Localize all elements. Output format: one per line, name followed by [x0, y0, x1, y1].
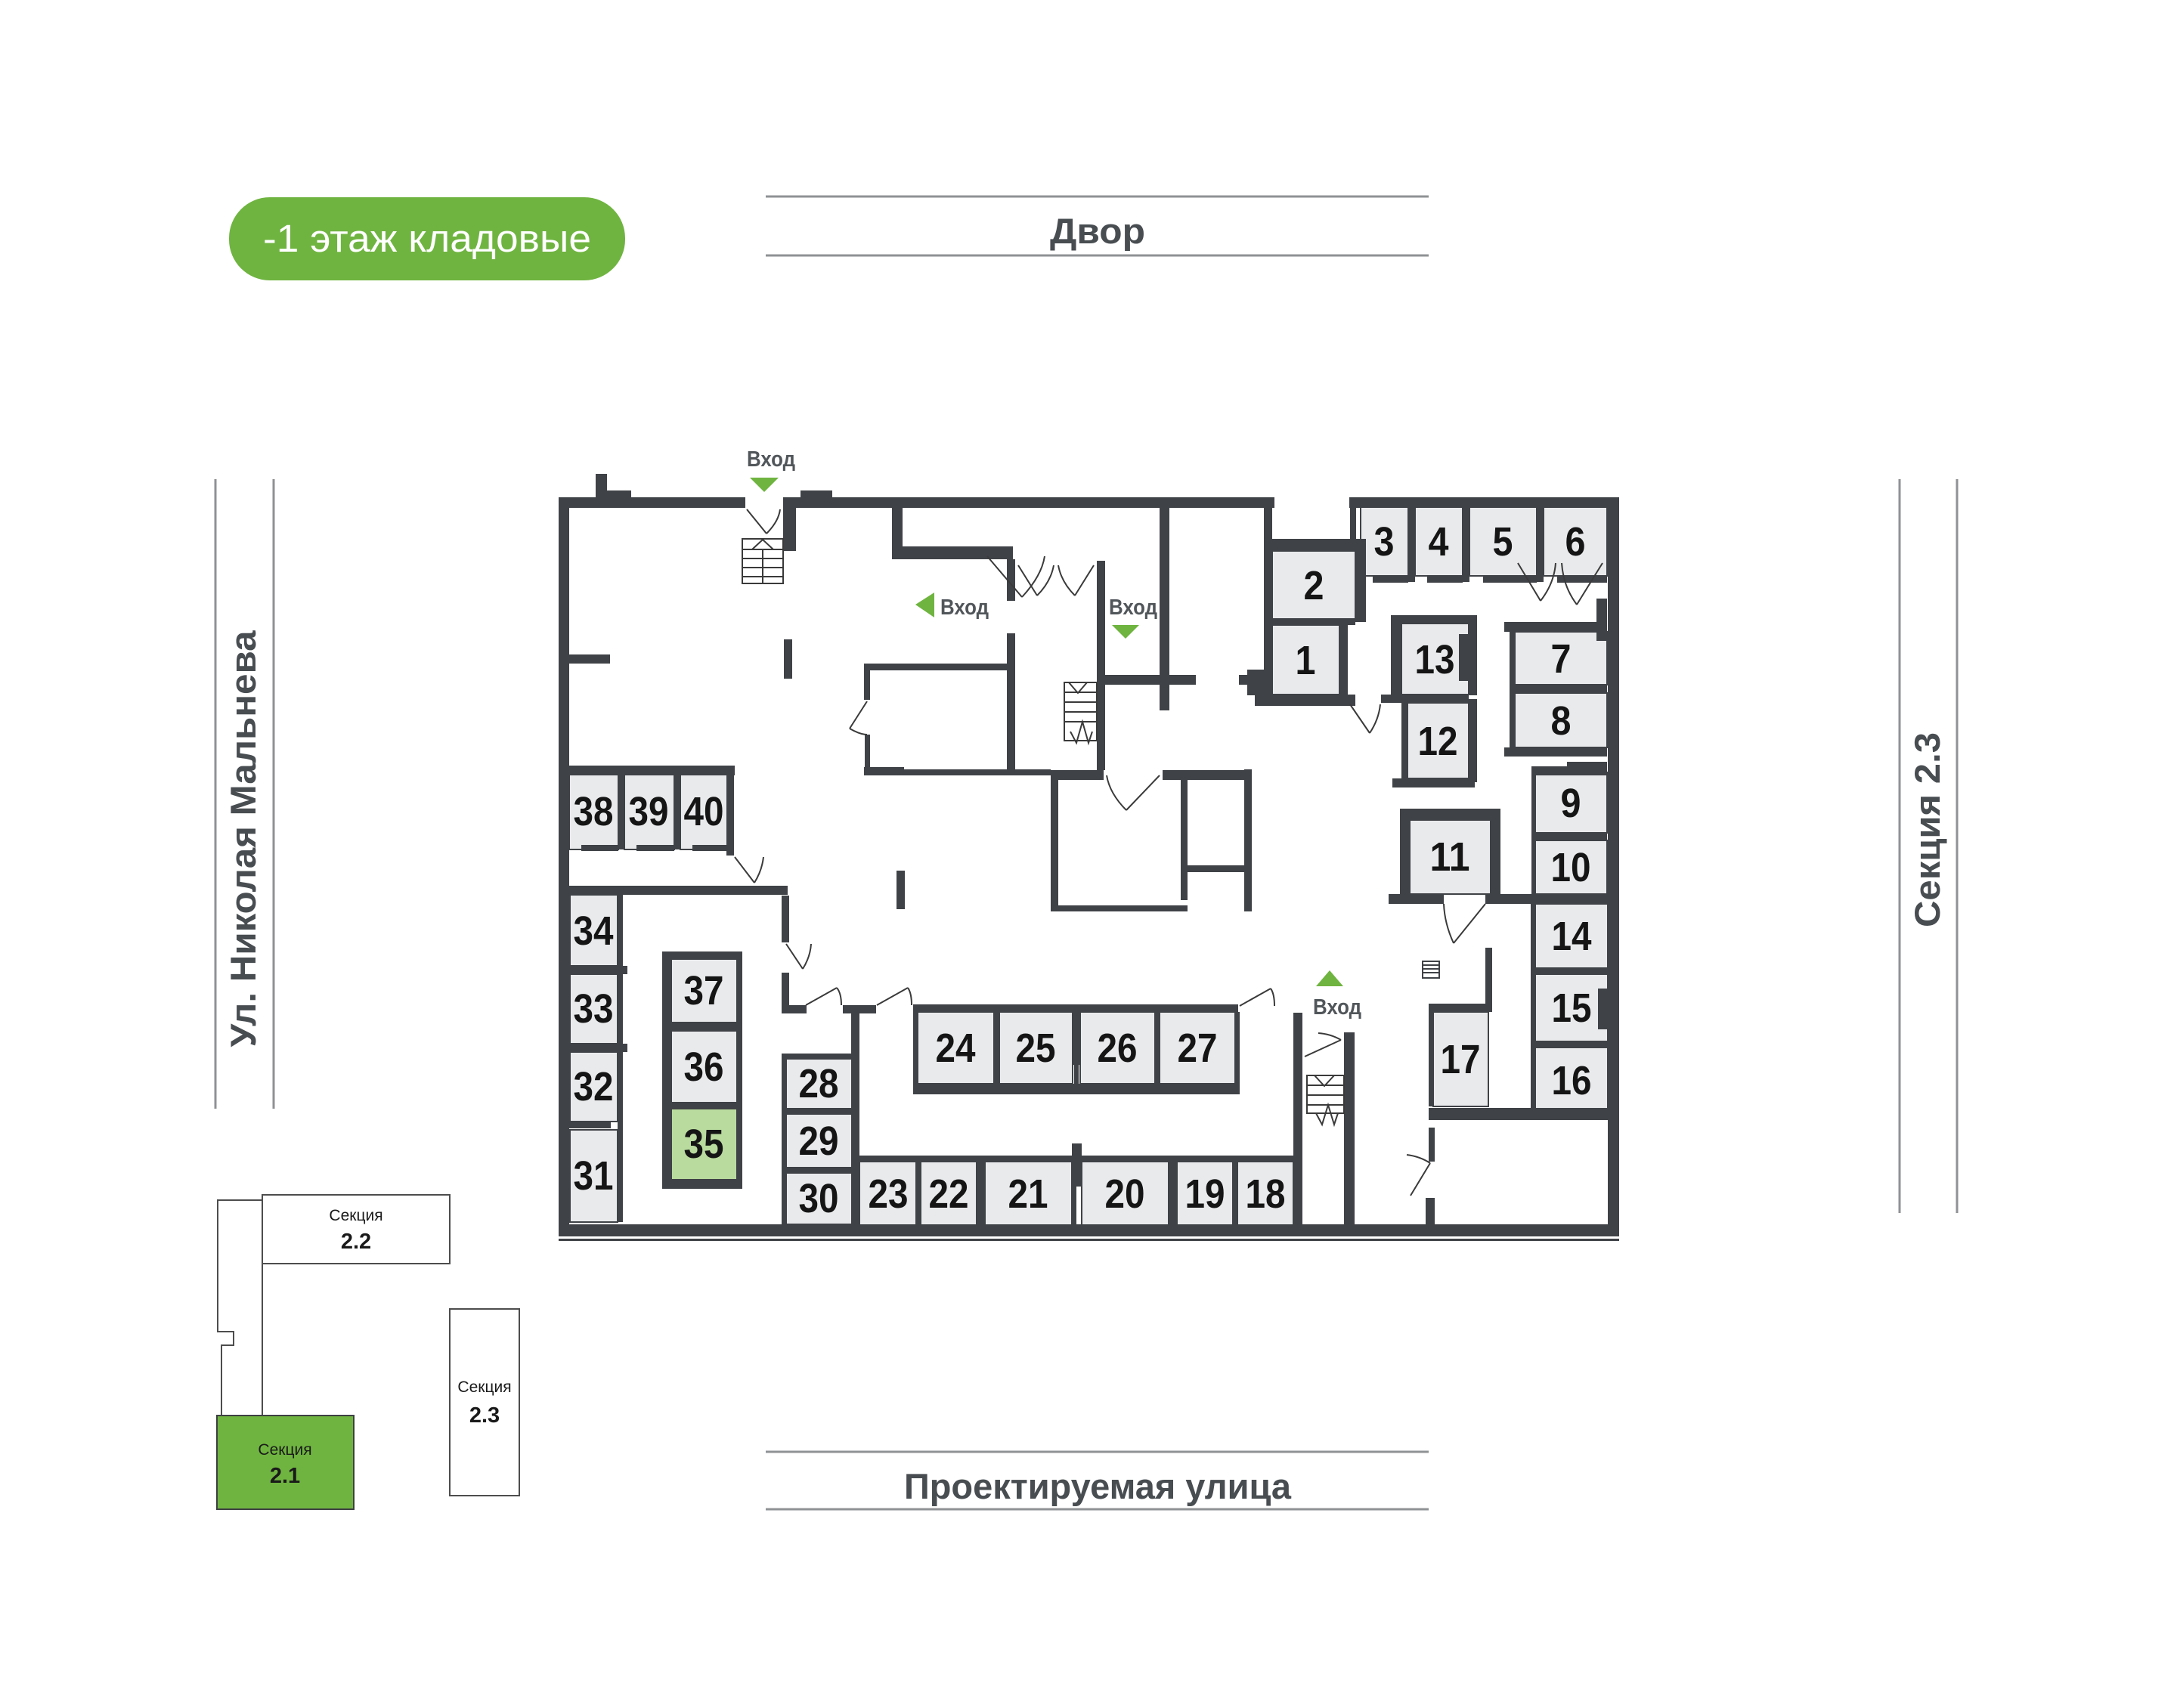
svg-text:4: 4	[1429, 519, 1449, 565]
svg-text:Вход: Вход	[940, 596, 989, 620]
svg-text:10: 10	[1551, 845, 1591, 890]
svg-text:8: 8	[1551, 698, 1572, 744]
svg-text:7: 7	[1551, 636, 1572, 682]
svg-text:30: 30	[799, 1176, 839, 1221]
svg-text:24: 24	[936, 1026, 976, 1071]
svg-text:Секция: Секция	[258, 1441, 311, 1459]
svg-text:Вход: Вход	[747, 447, 795, 472]
svg-text:12: 12	[1418, 719, 1458, 764]
svg-text:13: 13	[1415, 637, 1455, 682]
svg-text:39: 39	[629, 789, 669, 834]
svg-text:2.2: 2.2	[341, 1230, 371, 1254]
svg-text:33: 33	[574, 986, 614, 1032]
svg-text:25: 25	[1016, 1026, 1056, 1071]
svg-text:32: 32	[574, 1064, 614, 1109]
svg-text:23: 23	[869, 1171, 909, 1217]
svg-text:2: 2	[1304, 563, 1324, 608]
svg-text:Секция: Секция	[457, 1378, 511, 1396]
svg-text:Ул. Николая Мальнева: Ул. Николая Мальнева	[223, 630, 263, 1047]
svg-text:21: 21	[1008, 1171, 1048, 1217]
svg-text:Проектируемая улица: Проектируемая улица	[904, 1466, 1292, 1506]
svg-text:18: 18	[1246, 1171, 1286, 1217]
svg-text:17: 17	[1441, 1037, 1481, 1082]
svg-text:31: 31	[574, 1153, 614, 1199]
svg-text:2.3: 2.3	[469, 1403, 500, 1428]
svg-text:Двор: Двор	[1050, 211, 1145, 251]
svg-text:37: 37	[684, 968, 724, 1013]
svg-text:19: 19	[1185, 1171, 1225, 1217]
svg-text:36: 36	[684, 1044, 724, 1090]
svg-text:27: 27	[1178, 1026, 1218, 1071]
svg-text:Вход: Вход	[1109, 596, 1157, 620]
svg-text:6: 6	[1565, 519, 1586, 565]
svg-text:40: 40	[684, 789, 724, 834]
svg-text:1: 1	[1296, 638, 1316, 683]
svg-text:Вход: Вход	[1313, 995, 1361, 1020]
svg-text:-1 этаж кладовые: -1 этаж кладовые	[263, 217, 591, 260]
svg-text:16: 16	[1552, 1058, 1592, 1103]
svg-text:38: 38	[574, 789, 614, 834]
svg-text:34: 34	[574, 908, 614, 954]
svg-text:Секция: Секция	[329, 1207, 382, 1224]
svg-text:Секция 2.3: Секция 2.3	[1907, 732, 1947, 927]
svg-text:22: 22	[929, 1171, 969, 1217]
svg-text:35: 35	[684, 1122, 724, 1167]
svg-text:2.1: 2.1	[270, 1464, 300, 1488]
svg-text:14: 14	[1552, 914, 1592, 959]
svg-text:5: 5	[1493, 519, 1513, 565]
svg-text:20: 20	[1105, 1171, 1145, 1217]
svg-text:3: 3	[1374, 519, 1395, 565]
svg-text:28: 28	[799, 1061, 839, 1106]
svg-text:9: 9	[1561, 781, 1581, 826]
svg-text:15: 15	[1552, 986, 1592, 1031]
svg-text:11: 11	[1430, 834, 1470, 880]
svg-text:26: 26	[1098, 1026, 1138, 1071]
svg-text:29: 29	[799, 1119, 839, 1164]
